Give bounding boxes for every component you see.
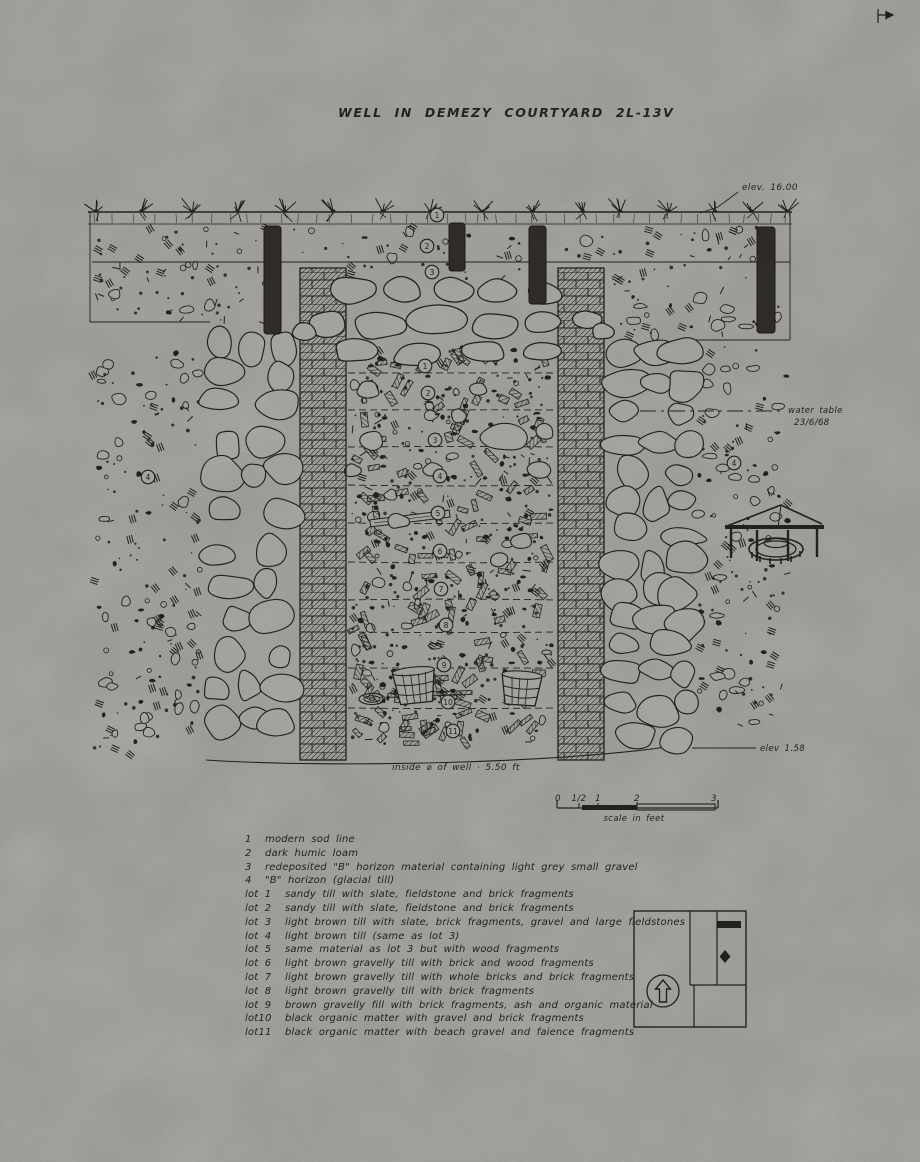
legend: 1modern sod line2dark humic loam3redepos… xyxy=(245,833,685,1040)
lot-marker-4: 4 xyxy=(433,469,447,483)
b-horizon-marker-right-label: 4 xyxy=(732,459,737,468)
scanned-drawing-page: 0 1/2 1 2 3 scale in feet xyxy=(0,0,920,1162)
plan-inner-walls xyxy=(690,911,746,1027)
b-horizon-marker-left: 4 xyxy=(141,470,155,484)
legend-item-text: redeposited "B" horizon material contain… xyxy=(265,861,638,875)
legend-item: lot11black organic matter with beach gra… xyxy=(245,1026,685,1040)
legend-item-text: modern sod line xyxy=(265,833,355,847)
b-horizon-marker-left-label: 4 xyxy=(146,473,151,482)
legend-item-key: lot 8 xyxy=(245,985,285,999)
legend-item-text: dark humic loam xyxy=(265,847,358,861)
legend-item-key: lot10 xyxy=(245,1012,285,1026)
lot-marker-2-label: 2 xyxy=(426,389,431,398)
scale-tick-3: 3 xyxy=(711,794,717,804)
legend-item-text: sandy till with slate, fieldstone and br… xyxy=(285,888,574,902)
legend-item-key: lot 2 xyxy=(245,902,285,916)
legend-item-key: lot11 xyxy=(245,1026,285,1040)
legend-item-text: brown gravelly fill with brick fragments… xyxy=(285,999,653,1013)
legend-item-text: light brown gravelly till with whole bri… xyxy=(285,971,634,985)
layer-marker-1: 1 xyxy=(430,208,444,222)
lot-marker-2: 2 xyxy=(421,386,435,400)
plan-well-marker xyxy=(720,950,731,963)
elev-top-leader xyxy=(700,192,738,213)
scale-caption: scale in feet xyxy=(603,814,664,824)
legend-item-key: lot 7 xyxy=(245,971,285,985)
layer-marker-3: 3 xyxy=(425,265,439,279)
legend-item-key: lot 9 xyxy=(245,999,285,1013)
legend-item-text: same material as lot 3 but with wood fra… xyxy=(285,943,559,957)
scale-tick-half: 1/2 xyxy=(572,794,587,804)
layer-marker-1-label: 1 xyxy=(435,211,440,220)
lot-marker-1-label: 1 xyxy=(423,362,428,371)
lot-marker-7: 7 xyxy=(434,582,448,596)
legend-item: lot 4light brown till (same as lot 3) xyxy=(245,930,685,944)
layer-marker-3-label: 3 xyxy=(430,268,435,277)
lot-marker-4-label: 4 xyxy=(438,472,443,481)
water-table-label: water table xyxy=(788,406,843,416)
legend-item-key: lot 1 xyxy=(245,888,285,902)
legend-item-key: lot 6 xyxy=(245,957,285,971)
legend-item: 1modern sod line xyxy=(245,833,685,847)
legend-item-text: light brown till with slate, brick fragm… xyxy=(285,916,685,930)
scale-bar-open-segment xyxy=(637,804,715,810)
scale-bar-solid-segment xyxy=(582,805,637,810)
wooden-post-4 xyxy=(757,227,775,333)
legend-item-text: light brown till (same as lot 3) xyxy=(285,930,460,944)
lot-marker-9: 9 xyxy=(437,658,451,672)
wooden-bucket-right xyxy=(500,670,542,707)
lot-marker-6: 6 xyxy=(433,544,447,558)
layer-marker-2-label: 2 xyxy=(425,242,430,251)
legend-item: lot 3light brown till with slate, brick … xyxy=(245,916,685,930)
water-table-date-label: 23/6/68 xyxy=(794,418,830,428)
well-bottom-line xyxy=(206,744,688,764)
legend-item-key: 1 xyxy=(245,833,265,847)
legend-item: lot 9brown gravelly fill with brick frag… xyxy=(245,999,685,1013)
lot-marker-1: 1 xyxy=(418,359,432,373)
layer-marker-2: 2 xyxy=(420,239,434,253)
elev-bottom-label: elev 1.58 xyxy=(760,744,805,754)
figure-title: WELL IN DEMEZY COURTYARD 2L-13V xyxy=(338,105,674,120)
legend-item-key: lot 5 xyxy=(245,943,285,957)
legend-item-key: 3 xyxy=(245,861,265,875)
legend-item: 4"B" horizon (glacial till) xyxy=(245,874,685,888)
lot-marker-10-label: 10 xyxy=(443,698,453,707)
scale-tick-2: 2 xyxy=(634,794,640,804)
legend-item-text: black organic matter with gravel and bri… xyxy=(285,1012,584,1026)
lot-marker-8: 8 xyxy=(439,618,453,632)
legend-item: lot 2sandy till with slate, fieldstone a… xyxy=(245,902,685,916)
legend-item-text: light brown gravelly till with brick and… xyxy=(285,957,594,971)
legend-item: 3redeposited "B" horizon material contai… xyxy=(245,861,685,875)
wooden-bucket-left xyxy=(392,665,438,705)
lot-marker-5-label: 5 xyxy=(436,509,441,518)
lot-marker-3: 3 xyxy=(428,433,442,447)
lot-marker-8-label: 8 xyxy=(444,621,449,630)
legend-item: lot 1sandy till with slate, fieldstone a… xyxy=(245,888,685,902)
lot-marker-3-label: 3 xyxy=(433,436,438,445)
scale-bar: 0 1/2 1 2 3 scale in feet xyxy=(555,794,718,824)
legend-item-text: "B" horizon (glacial till) xyxy=(265,874,394,888)
legend-item-text: black organic matter with beach gravel a… xyxy=(285,1026,634,1040)
scale-tick-1: 1 xyxy=(595,794,601,804)
legend-item-text: sandy till with slate, fieldstone and br… xyxy=(285,902,574,916)
b-horizon-marker-right: 4 xyxy=(727,456,741,470)
elev-top-label: elev. 16.00 xyxy=(742,183,798,193)
legend-item-key: lot 4 xyxy=(245,930,285,944)
lot-marker-11: 11 xyxy=(446,724,460,738)
legend-item: lot 6light brown gravelly till with bric… xyxy=(245,957,685,971)
plan-feature-bar xyxy=(717,921,741,928)
lot-marker-7-label: 7 xyxy=(439,585,444,594)
lot-marker-6-label: 6 xyxy=(438,547,443,556)
legend-item: lot 5same material as lot 3 but with woo… xyxy=(245,943,685,957)
well-wall-right-bricks xyxy=(558,268,604,760)
wooden-post-3 xyxy=(529,226,546,304)
lot-marker-5: 5 xyxy=(431,506,445,520)
legend-item-key: 4 xyxy=(245,874,265,888)
legend-item: lot10black organic matter with gravel an… xyxy=(245,1012,685,1026)
wooden-post-2 xyxy=(449,223,465,271)
scale-tick-0: 0 xyxy=(555,794,561,804)
legend-item-key: 2 xyxy=(245,847,265,861)
legend-item: lot 7light brown gravelly till with whol… xyxy=(245,971,685,985)
lot-marker-10: 10 xyxy=(441,695,455,709)
page-corner-mark xyxy=(878,9,893,23)
lot-marker-11-label: 11 xyxy=(448,727,458,736)
wooden-post-1 xyxy=(264,226,281,334)
legend-item-key: lot 3 xyxy=(245,916,285,930)
legend-item: lot 8light brown gravelly till with bric… xyxy=(245,985,685,999)
lot-marker-9-label: 9 xyxy=(442,661,447,670)
inside-diameter-label: inside ⌀ of well · 5.50 ft xyxy=(392,763,520,773)
legend-item: 2dark humic loam xyxy=(245,847,685,861)
legend-item-text: light brown gravelly till with brick fra… xyxy=(285,985,534,999)
